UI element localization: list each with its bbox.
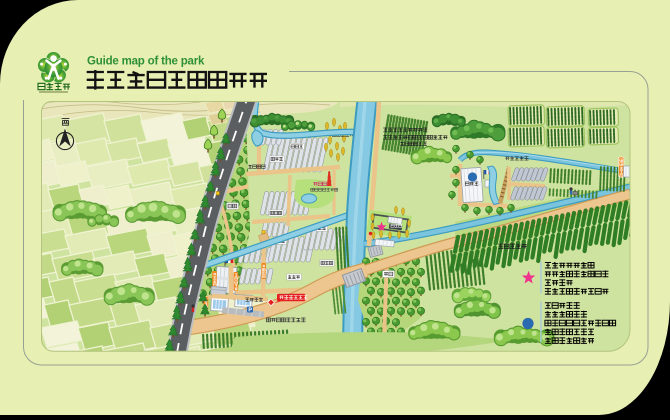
svg-text:Guide map of the park: Guide map of the park <box>87 56 205 68</box>
svg-text:P: P <box>248 308 252 314</box>
